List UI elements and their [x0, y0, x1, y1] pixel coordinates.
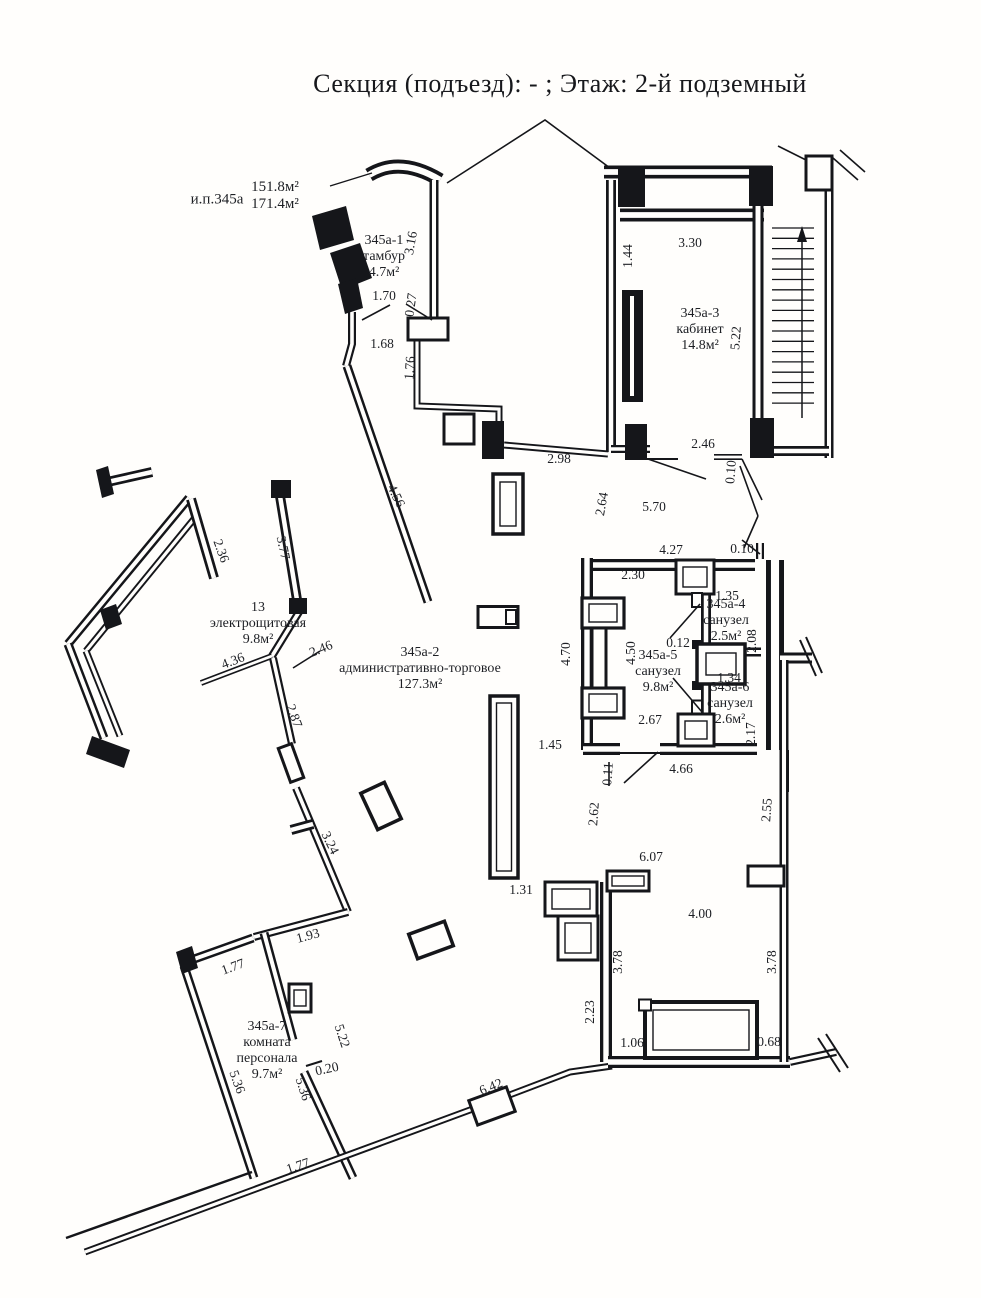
room-label-line: 13	[210, 600, 306, 616]
room-label-line: 345а-7	[237, 1019, 298, 1035]
room-label-345а-1: 345а-1тамбур4.7м²	[363, 233, 405, 281]
dimension-label: 2.98	[547, 451, 571, 467]
floor-plan-page: Секция (подъезд): - ; Этаж: 2-й подземны…	[0, 0, 981, 1298]
dimension-label: 4.27	[659, 542, 683, 558]
room-label-line: 9.7м²	[237, 1067, 298, 1083]
room-label-345а-7: 345а-7комнатаперсонала9.7м²	[237, 1019, 298, 1083]
room-label-line: 9.8м²	[210, 632, 306, 648]
room-label-line: 14.8м²	[676, 338, 723, 354]
room-label-line: 345а-1	[363, 233, 405, 249]
dimension-label: 1.70	[372, 288, 396, 304]
room-label-345а-3: 345а-3кабинет14.8м²	[676, 306, 723, 354]
page-title: Секция (подъезд): - ; Этаж: 2-й подземны…	[313, 69, 807, 99]
room-label-line: 345а-4	[703, 597, 749, 613]
dimension-label: 4.00	[688, 906, 712, 922]
room-label-line: тамбур	[363, 249, 405, 265]
room-label-345а-2: 345а-2административно-торговое127.3м²	[339, 645, 501, 693]
dimension-label: 1.45	[538, 737, 562, 753]
dimension-label: 2.23	[582, 1000, 598, 1024]
dimension-label: 5.70	[642, 499, 666, 515]
room-label-ип345а-areas: 151.8м²171.4м²	[251, 179, 299, 214]
dimension-label: 5.22	[727, 326, 745, 351]
dimension-label: 2.55	[758, 798, 776, 823]
dimension-label: 1.06	[620, 1035, 644, 1051]
dimension-label: 3.30	[678, 235, 702, 251]
dimension-label: 0.68	[757, 1034, 781, 1050]
room-label-line: кабинет	[676, 322, 723, 338]
room-label-345а-5: 345а-5санузел9.8м²	[635, 648, 681, 696]
room-label-line: 151.8м²	[251, 179, 299, 196]
room-label-345а-4: 345а-4санузел2.5м²	[703, 597, 749, 645]
room-label-line: административно-торговое	[339, 661, 501, 677]
room-label-line: санузел	[707, 696, 753, 712]
room-label-line: 9.8м²	[635, 680, 681, 696]
dimension-label: 2.30	[621, 567, 645, 583]
dimension-label: 0.11	[599, 762, 617, 786]
room-label-13: 13электрощитовая9.8м²	[210, 600, 306, 648]
dimension-label: 4.70	[558, 642, 574, 666]
room-label-line: санузел	[635, 664, 681, 680]
room-label-line: 127.3м²	[339, 677, 501, 693]
dimension-label: 0.27	[401, 292, 420, 318]
room-label-line: 345а-3	[676, 306, 723, 322]
room-label-345а-6: 345а-6санузел2.6м²	[707, 680, 753, 728]
room-label-line: 171.4м²	[251, 196, 299, 213]
dimension-label: 0.10	[730, 541, 754, 557]
dimension-label: 3.78	[610, 950, 626, 974]
room-label-line: 2.5м²	[703, 629, 749, 645]
dimension-label: 1.44	[620, 244, 636, 268]
room-label-line: персонала	[237, 1051, 298, 1067]
room-label-line: комната	[237, 1035, 298, 1051]
room-label-line: 345а-2	[339, 645, 501, 661]
dimension-label: 1.31	[509, 882, 533, 898]
dimension-label: 2.67	[638, 712, 662, 728]
room-label-line: электрощитовая	[210, 616, 306, 632]
dimension-label: 2.62	[585, 802, 603, 827]
dimension-label: 1.76	[401, 356, 419, 381]
room-label-line: 4.7м²	[363, 265, 405, 281]
dimension-label: 2.46	[691, 436, 715, 452]
room-label-line: санузел	[703, 613, 749, 629]
room-label-line: 2.6м²	[707, 712, 753, 728]
room-label-ип345а: и.п.345а	[191, 191, 244, 208]
room-label-line: 345а-5	[635, 648, 681, 664]
dimension-label: 0.10	[722, 460, 740, 485]
dimension-label: 4.66	[669, 761, 693, 777]
dimension-label: 6.07	[639, 849, 663, 865]
dimension-label: 1.68	[370, 336, 394, 352]
dimension-label: 3.78	[764, 950, 780, 974]
room-label-line: 345а-6	[707, 680, 753, 696]
room-label-line: и.п.345а	[191, 191, 244, 208]
